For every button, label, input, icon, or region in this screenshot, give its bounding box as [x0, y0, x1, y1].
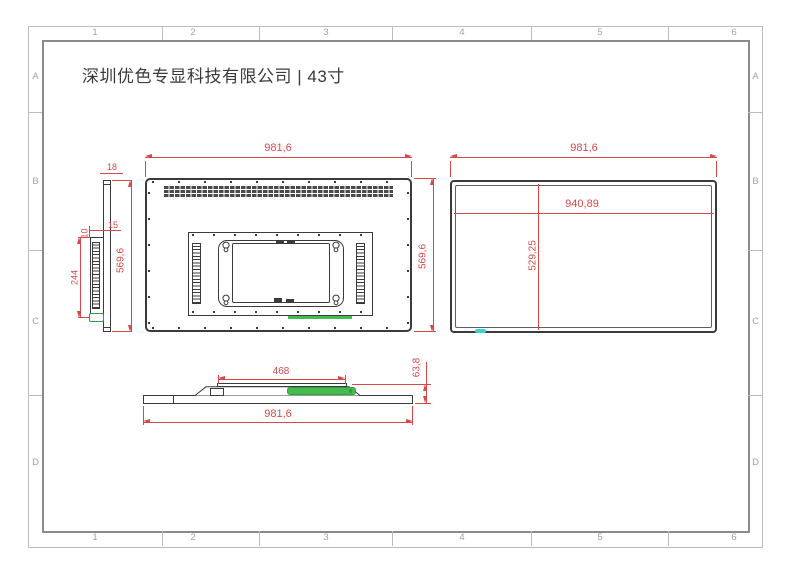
ir-sensor-mark	[475, 329, 486, 333]
bottom-view-panel	[143, 395, 413, 404]
dim-side-height: 569,6	[116, 238, 127, 284]
grid-row-label: B	[29, 176, 42, 188]
grid-col-label: 5	[588, 27, 612, 39]
extension-line	[412, 406, 413, 425]
dim-line-bottom-width	[143, 422, 413, 423]
grid-row-label: C	[749, 316, 762, 328]
connector-mark	[287, 240, 295, 244]
extension-line	[716, 161, 717, 177]
grid-col-label: 1	[83, 532, 107, 544]
grid-tick	[668, 26, 669, 40]
bottom-connector-box	[210, 388, 224, 396]
connector-mark	[276, 240, 284, 244]
grid-row-label: D	[29, 457, 42, 469]
dim-bottom-bracket-width: 468	[251, 366, 311, 377]
dim-arrow	[128, 180, 132, 187]
grid-tick	[28, 112, 42, 113]
grid-col-label: 2	[181, 27, 205, 39]
grid-tick	[748, 250, 762, 251]
screw-marks	[407, 186, 409, 324]
grid-col-label: 3	[314, 27, 338, 39]
extension-line	[218, 375, 219, 384]
rear-vent-strip-left	[192, 243, 201, 304]
rear-bracket-highlight	[288, 316, 352, 319]
dim-display-width: 940,89	[542, 199, 622, 210]
panel-notch	[173, 396, 174, 403]
grid-col-label: 2	[181, 532, 205, 544]
extension-line	[352, 384, 431, 385]
display-width-line	[454, 213, 714, 214]
dim-display-height: 529,25	[528, 231, 539, 281]
connector-mark	[274, 298, 282, 302]
grid-tick	[748, 112, 762, 113]
extension-line	[112, 331, 132, 332]
extension-line	[112, 180, 132, 181]
grid-row-label: A	[749, 71, 762, 83]
dim-arrow	[710, 154, 717, 158]
dim-arrow	[218, 376, 225, 380]
dim-bottom-depth: 63,8	[412, 353, 423, 383]
grid-tick	[162, 26, 163, 40]
dim-arrow	[143, 419, 150, 423]
rear-vent-grille	[163, 186, 393, 198]
vesa-keyhole	[221, 241, 231, 253]
screw-marks	[192, 311, 369, 313]
dim-line-bracket-width	[218, 379, 345, 380]
dim-arrow	[405, 154, 412, 158]
grid-tick	[392, 531, 393, 546]
grid-col-label: 4	[450, 27, 474, 39]
extension-line	[450, 161, 451, 177]
dim-bottom-width: 981,6	[238, 409, 318, 420]
dim-arrow	[450, 154, 457, 158]
extension-line	[415, 403, 431, 404]
dim-rear-height: 569,6	[418, 234, 429, 280]
screw-marks	[192, 234, 369, 236]
grid-row-label: B	[749, 176, 762, 188]
screw-marks	[148, 186, 150, 324]
dim-line-front-width	[450, 157, 717, 158]
grid-tick	[259, 531, 260, 546]
dim-line-side-height	[131, 180, 132, 332]
extension-line	[414, 178, 436, 179]
side-panel-capline	[104, 327, 110, 328]
grid-tick	[28, 395, 42, 396]
dim-arrow	[338, 376, 345, 380]
drawing-title: 深圳优色专显科技有限公司 | 43寸	[82, 62, 345, 87]
grid-row-label: A	[29, 71, 42, 83]
extension-line	[411, 161, 412, 177]
vesa-inner-frame	[232, 243, 330, 303]
screw-marks	[152, 327, 405, 329]
dim-arrow	[430, 178, 434, 185]
grid-tick	[162, 531, 163, 546]
connector-mark	[286, 299, 294, 303]
drawing-sheet: 1 2 3 4 5 6 1 2 3 4 5 6 A B C D A B C D …	[0, 0, 790, 573]
extension-line	[78, 317, 90, 318]
dim-line	[89, 226, 90, 238]
grid-tick	[668, 531, 669, 546]
vesa-keyhole	[331, 294, 341, 306]
dim-line	[90, 230, 121, 231]
dim-arrow	[423, 396, 427, 403]
grid-tick	[531, 531, 532, 546]
dim-line-rear-width	[145, 157, 412, 158]
dim-line	[100, 173, 123, 174]
grid-tick	[259, 26, 260, 40]
extension-line	[414, 331, 436, 332]
grid-tick	[28, 250, 42, 251]
side-vent-strip	[92, 242, 100, 309]
grid-col-label: 4	[450, 532, 474, 544]
dim-side-thickness: 18	[97, 162, 127, 173]
bottom-bracket-highlight	[287, 387, 356, 395]
dim-arrow	[145, 154, 152, 158]
side-mount-bracket	[89, 313, 104, 322]
grid-col-label: 5	[588, 532, 612, 544]
dim-side-bracket-height: 244	[70, 263, 81, 293]
bracket-end-cap	[349, 389, 352, 393]
dim-arrow	[423, 384, 427, 391]
dim-front-width: 981,6	[544, 143, 624, 154]
vesa-keyhole	[221, 294, 231, 306]
rear-vent-strip-right	[356, 243, 365, 304]
vesa-keyhole	[331, 241, 341, 253]
grid-col-label: 6	[722, 27, 746, 39]
dim-rear-width: 981,6	[238, 143, 318, 154]
grid-col-label: 1	[83, 27, 107, 39]
grid-col-label: 3	[314, 532, 338, 544]
grid-row-label: C	[29, 316, 42, 328]
grid-col-label: 6	[722, 532, 746, 544]
extension-line	[145, 161, 146, 177]
screw-marks	[152, 181, 405, 183]
extension-line	[143, 406, 144, 425]
grid-tick	[531, 26, 532, 40]
side-view-panel	[103, 180, 111, 332]
grid-tick	[748, 395, 762, 396]
side-panel-capline	[104, 184, 110, 185]
dim-line-rear-height	[433, 178, 434, 332]
grid-row-label: D	[749, 457, 762, 469]
grid-tick	[392, 26, 393, 40]
extension-line	[345, 375, 346, 384]
